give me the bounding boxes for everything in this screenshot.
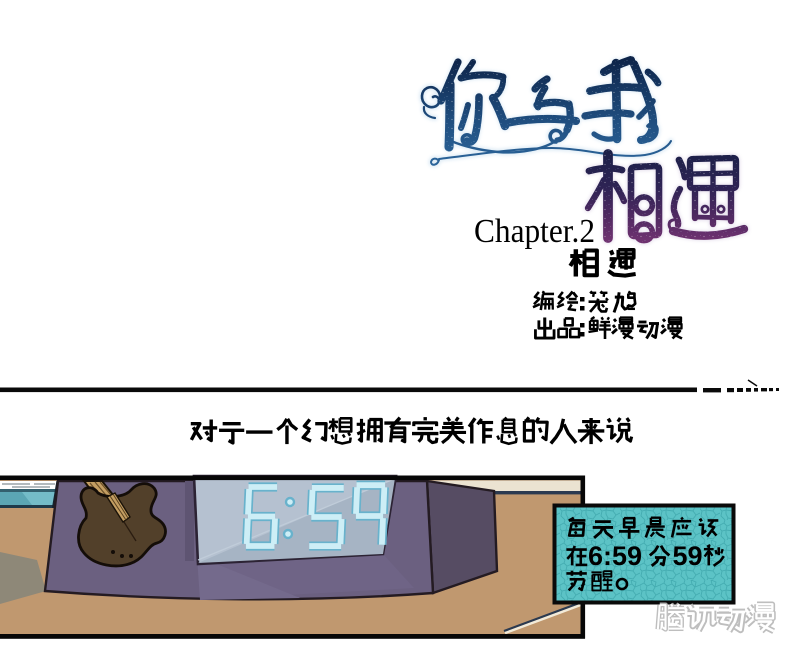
svg-text:6:59: 6:59 — [588, 541, 642, 571]
svg-text:59: 59 — [673, 541, 703, 571]
svg-text:Chapter.2: Chapter.2 — [474, 213, 595, 250]
